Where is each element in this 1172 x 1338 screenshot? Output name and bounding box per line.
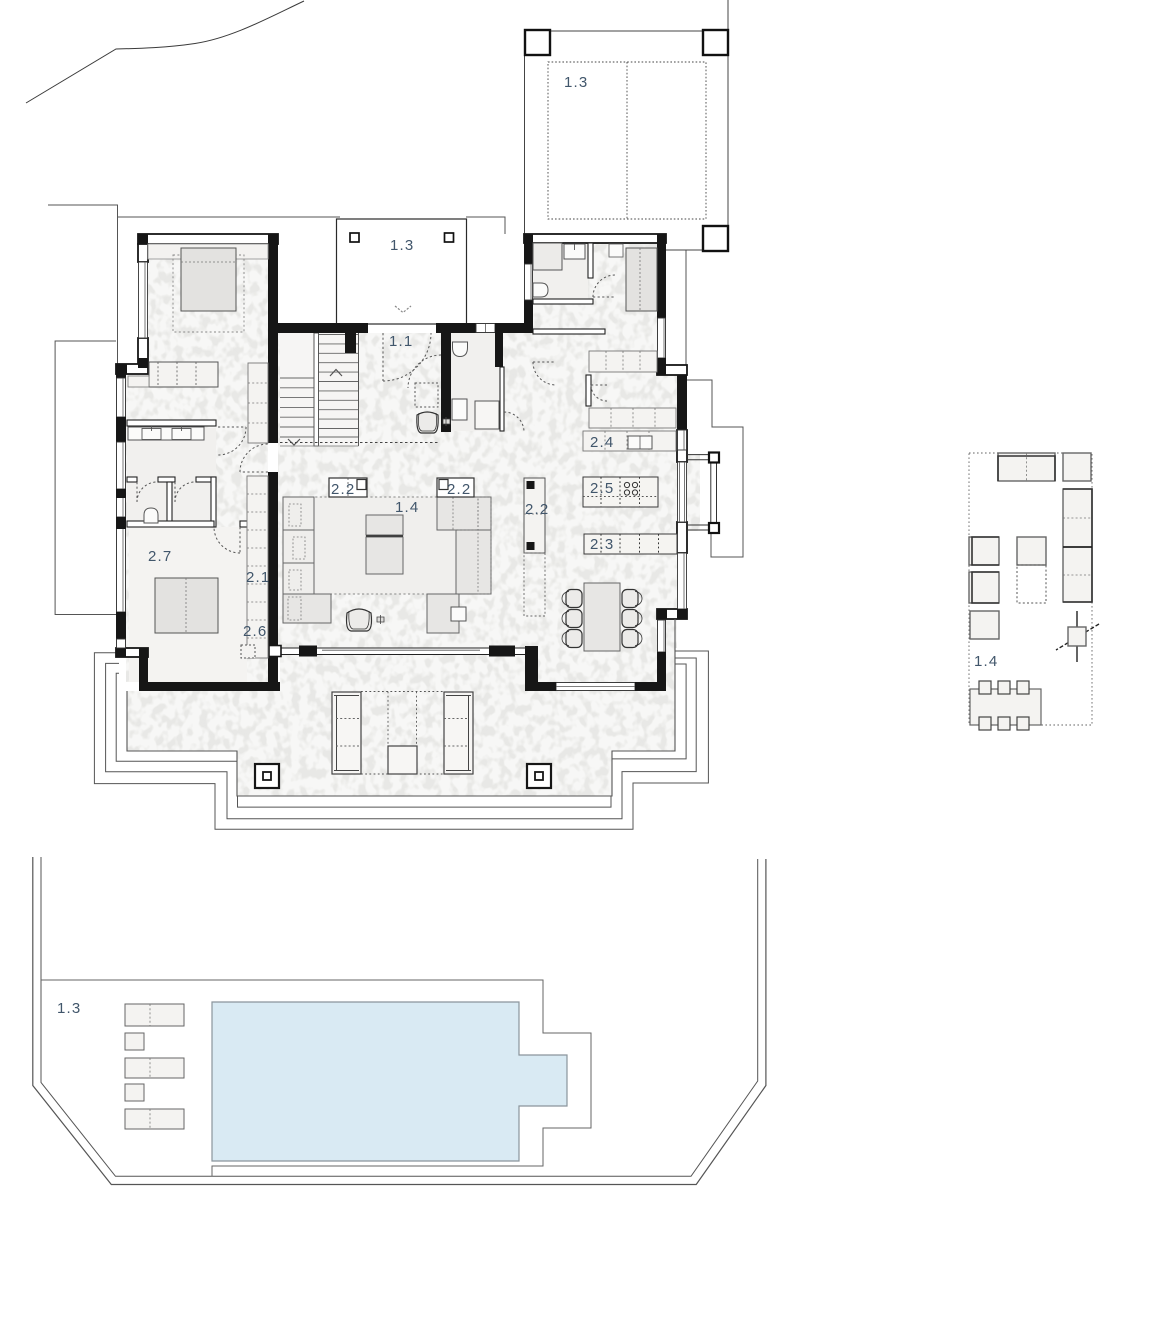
svg-text:2.2: 2.2 — [447, 481, 471, 498]
svg-text:2.2: 2.2 — [331, 481, 355, 498]
svg-text:1.4: 1.4 — [974, 653, 998, 670]
svg-text:2.2: 2.2 — [525, 501, 549, 518]
svg-text:1.3: 1.3 — [564, 74, 588, 91]
svg-text:1.3: 1.3 — [390, 237, 414, 254]
svg-text:1.3: 1.3 — [57, 1000, 81, 1017]
svg-text:2.5: 2.5 — [590, 480, 614, 497]
svg-text:2.3: 2.3 — [590, 536, 614, 553]
svg-text:2.6: 2.6 — [243, 623, 267, 640]
svg-text:2.4: 2.4 — [590, 434, 614, 451]
svg-text:1.4: 1.4 — [395, 499, 419, 516]
svg-text:2.1: 2.1 — [246, 569, 270, 586]
svg-text:2.7: 2.7 — [148, 548, 172, 565]
svg-text:1.1: 1.1 — [389, 333, 413, 350]
